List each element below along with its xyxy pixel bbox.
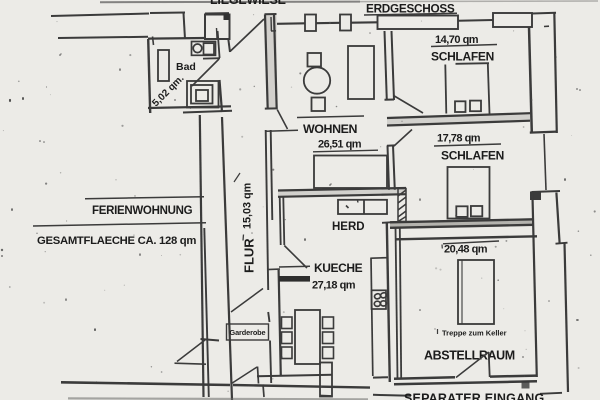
svg-text:14,70 qm: 14,70 qm xyxy=(435,34,479,46)
svg-text:27,18 qm: 27,18 qm xyxy=(312,280,356,292)
svg-text:LIEGEWIESE: LIEGEWIESE xyxy=(210,0,286,7)
svg-text:Bad: Bad xyxy=(176,61,196,73)
svg-text:WOHNEN: WOHNEN xyxy=(303,122,357,136)
svg-text:SCHLAFEN: SCHLAFEN xyxy=(431,50,494,64)
svg-text:SCHLAFEN: SCHLAFEN xyxy=(441,149,504,163)
svg-text:SEPARATER EINGANG: SEPARATER EINGANG xyxy=(404,392,544,400)
svg-text:FLUR: FLUR xyxy=(242,238,257,273)
svg-text:FERIENWOHNUNG: FERIENWOHNUNG xyxy=(92,205,193,217)
svg-text:17,78 qm: 17,78 qm xyxy=(437,133,481,145)
svg-text:Treppe zum Keller: Treppe zum Keller xyxy=(442,329,507,338)
svg-text:15,03 qm: 15,03 qm xyxy=(242,183,254,229)
svg-text:HERD: HERD xyxy=(332,221,365,233)
svg-text:Garderobe: Garderobe xyxy=(230,328,266,337)
svg-text:GESAMTFLAECHE CA. 128 qm: GESAMTFLAECHE CA. 128 qm xyxy=(37,235,196,247)
svg-text:20,48 qm: 20,48 qm xyxy=(444,244,488,256)
svg-text:ABSTELLRAUM: ABSTELLRAUM xyxy=(424,349,515,363)
svg-text:KUECHE: KUECHE xyxy=(314,261,363,275)
svg-text:26,51 qm: 26,51 qm xyxy=(318,139,362,151)
